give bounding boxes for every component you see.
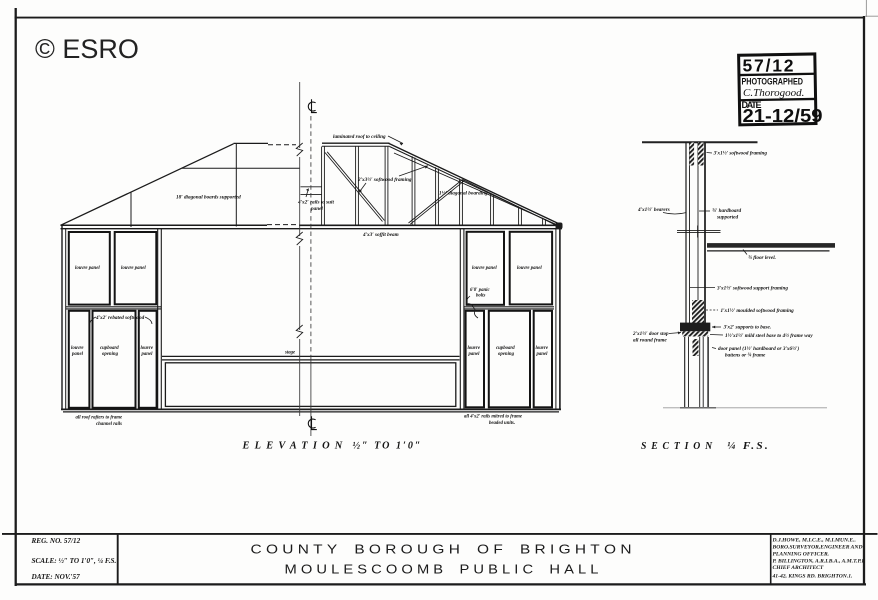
svg-text:© ESRO: © ESRO [35, 34, 139, 64]
svg-text:4′x1½′ bearers: 4′x1½′ bearers [637, 206, 670, 213]
svg-text:louvre: louvre [536, 346, 549, 351]
svg-text:SECTION: SECTION [641, 441, 717, 452]
svg-text:opening: opening [102, 352, 119, 357]
svg-text:louvre panel: louvre panel [472, 266, 497, 271]
svg-text:1½′x1½′ mild steel base to 4½: 1½′x1½′ mild steel base to 4½ frame way [725, 332, 813, 339]
svg-text:6′0′ panic: 6′0′ panic [470, 288, 490, 293]
svg-text:panel: panel [310, 206, 323, 212]
svg-text:louvre panel: louvre panel [75, 266, 100, 271]
svg-text:2′x1½′ door stop: 2′x1½′ door stop [632, 330, 669, 337]
svg-text:3′x1½′ softwood framing: 3′x1½′ softwood framing [713, 150, 768, 157]
svg-text:cupboard: cupboard [100, 346, 119, 351]
svg-text:supported: supported [716, 215, 738, 221]
svg-text:SCALE: ½″ TO 1′0″, ¼ F.S.: SCALE: ½″ TO 1′0″, ¼ F.S. [32, 557, 117, 565]
svg-text:41-42, KINGS RD. BRIGHTON.1.: 41-42, KINGS RD. BRIGHTON.1. [772, 574, 853, 580]
svg-text:all roof rafters to frame: all roof rafters to frame [76, 416, 124, 421]
svg-text:21-12/59: 21-12/59 [743, 105, 823, 126]
svg-text:stage: stage [284, 351, 296, 356]
svg-text:opening: opening [498, 352, 515, 357]
svg-text:4′x2′ rebated softwood: 4′x2′ rebated softwood [95, 315, 145, 321]
svg-text:bolts: bolts [476, 294, 485, 299]
svg-text:louvre: louvre [468, 346, 481, 351]
svg-text:C.Thorogood.: C.Thorogood. [743, 87, 804, 99]
svg-text:3′x1½′ softwood support framin: 3′x1½′ softwood support framing [716, 285, 788, 292]
svg-text:laminated roof to ceiling: laminated roof to ceiling [333, 134, 386, 140]
svg-text:panel: panel [536, 352, 549, 357]
svg-text:M O U L E S C O O M B P U B: M O U L E S C O O M B P U B L I C H A L … [285, 563, 599, 577]
svg-text:P. BILLINGTON, A.R.I.B.A., A.M: P. BILLINGTON, A.R.I.B.A., A.M.T.P.I. [773, 559, 866, 565]
svg-text:panel: panel [71, 352, 84, 357]
svg-text:CHIEF ARCHITECT: CHIEF ARCHITECT [773, 565, 824, 571]
svg-text:1′x1½′ moulded softwood framin: 1′x1½′ moulded softwood framing [721, 307, 795, 314]
svg-text:DATE: NOV.′57: DATE: NOV.′57 [31, 573, 81, 581]
svg-text:BORO.SURVEYOR,ENGINEER AND: BORO.SURVEYOR,ENGINEER AND [772, 545, 863, 551]
svg-text:¼ F.S.: ¼ F.S. [727, 441, 770, 452]
svg-text:½″ TO 1′0″: ½″ TO 1′0″ [353, 441, 423, 452]
svg-text:louvre panel: louvre panel [121, 266, 146, 271]
svg-text:3′x2′ supports to base.: 3′x2′ supports to base. [723, 325, 772, 331]
svg-text:all round frame: all round frame [633, 338, 667, 344]
svg-text:PLANNING OFFICER.: PLANNING OFFICER. [773, 552, 830, 558]
svg-text:18′ diagonal boards supported: 18′ diagonal boards supported [176, 195, 241, 201]
svg-text:panel: panel [141, 352, 154, 357]
svg-text:all 4′x2′ rails mitred to fram: all 4′x2′ rails mitred to frame [464, 415, 523, 420]
svg-text:1½′ diagonal boarding: 1½′ diagonal boarding [439, 190, 488, 197]
svg-text:louvre: louvre [141, 346, 154, 351]
svg-text:louvre: louvre [71, 346, 84, 351]
svg-text:door panel (1½′ hardboard or 3: door panel (1½′ hardboard or 3′x6½′) [718, 345, 799, 352]
svg-text:panel: panel [468, 352, 481, 357]
svg-text:D.J.HOWE, M.I.C.E., M.I.MUN.E.: D.J.HOWE, M.I.C.E., M.I.MUN.E.. [772, 538, 856, 544]
svg-text:battens or ¾ frame: battens or ¾ frame [725, 353, 766, 359]
svg-text:C O U N T Y B O R O U G H: C O U N T Y B O R O U G H O F B R I G H … [251, 543, 632, 557]
svg-text:PHOTOGRAPHED: PHOTOGRAPHED [742, 77, 804, 87]
svg-text:4′x2′ rails to suit: 4′x2′ rails to suit [297, 200, 334, 206]
svg-text:cupboard: cupboard [496, 346, 515, 351]
svg-text:beaded units.: beaded units. [489, 421, 515, 426]
svg-text:¾′ hardboard: ¾′ hardboard [712, 208, 742, 214]
svg-text:louvre panel: louvre panel [517, 266, 542, 271]
svg-text:2′x3½′ softwood framing: 2′x3½′ softwood framing [357, 176, 412, 183]
svg-text:¾ floor level.: ¾ floor level. [748, 255, 776, 261]
svg-text:REG. NO. 57/12: REG. NO. 57/12 [31, 537, 81, 545]
svg-text:channel rails: channel rails [96, 422, 122, 427]
svg-text:ELEVATION: ELEVATION [241, 441, 347, 452]
svg-text:4′x3′ soffit beam: 4′x3′ soffit beam [362, 232, 399, 238]
svg-text:57/12: 57/12 [743, 56, 794, 76]
